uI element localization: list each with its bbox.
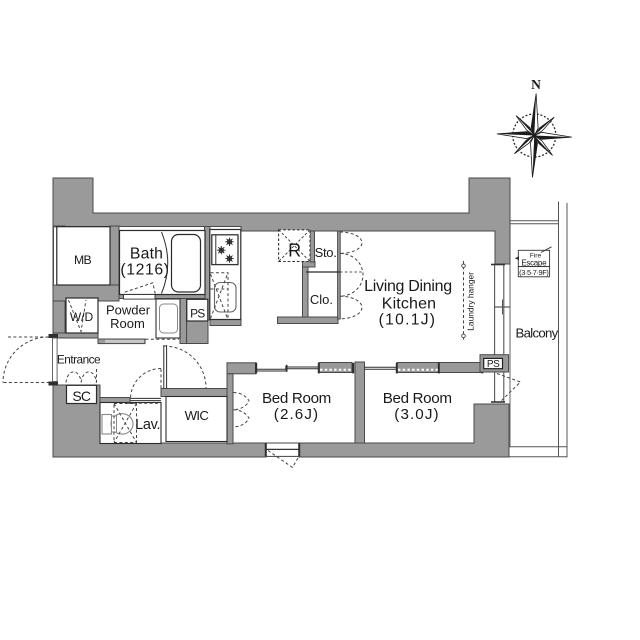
svg-text:N: N (531, 77, 541, 92)
svg-text:Lav.: Lav. (135, 417, 160, 433)
svg-text:Living Dining: Living Dining (364, 278, 452, 295)
svg-text:W/D: W/D (70, 310, 94, 324)
svg-text:Entrance: Entrance (57, 353, 101, 367)
svg-text:R: R (288, 241, 301, 261)
svg-text:Kitchen: Kitchen (382, 295, 436, 312)
svg-text:SC: SC (72, 388, 91, 404)
svg-text:Bed Room: Bed Room (383, 390, 452, 407)
svg-text:(1216): (1216) (120, 262, 169, 279)
svg-text:Balcony: Balcony (515, 326, 558, 341)
svg-text:(2.6J): (2.6J) (274, 406, 319, 423)
svg-text:Bath: Bath (130, 245, 163, 262)
svg-text:Laundry hanger: Laundry hanger (466, 272, 476, 331)
svg-text:PS: PS (190, 307, 205, 321)
svg-text:Clo.: Clo. (310, 292, 333, 307)
svg-text:WIC: WIC (185, 408, 210, 423)
svg-text:Bed Room: Bed Room (262, 390, 331, 407)
svg-text:Escape: Escape (521, 258, 547, 267)
svg-text:Room: Room (110, 316, 145, 331)
svg-text:PS: PS (487, 359, 500, 370)
svg-text:(3·5·7·9F): (3·5·7·9F) (519, 268, 548, 277)
svg-text:(10.1J): (10.1J) (379, 312, 437, 329)
svg-text:MB: MB (74, 253, 92, 267)
svg-text:Sto.: Sto. (315, 245, 337, 260)
svg-text:(3.0J): (3.0J) (394, 406, 439, 423)
